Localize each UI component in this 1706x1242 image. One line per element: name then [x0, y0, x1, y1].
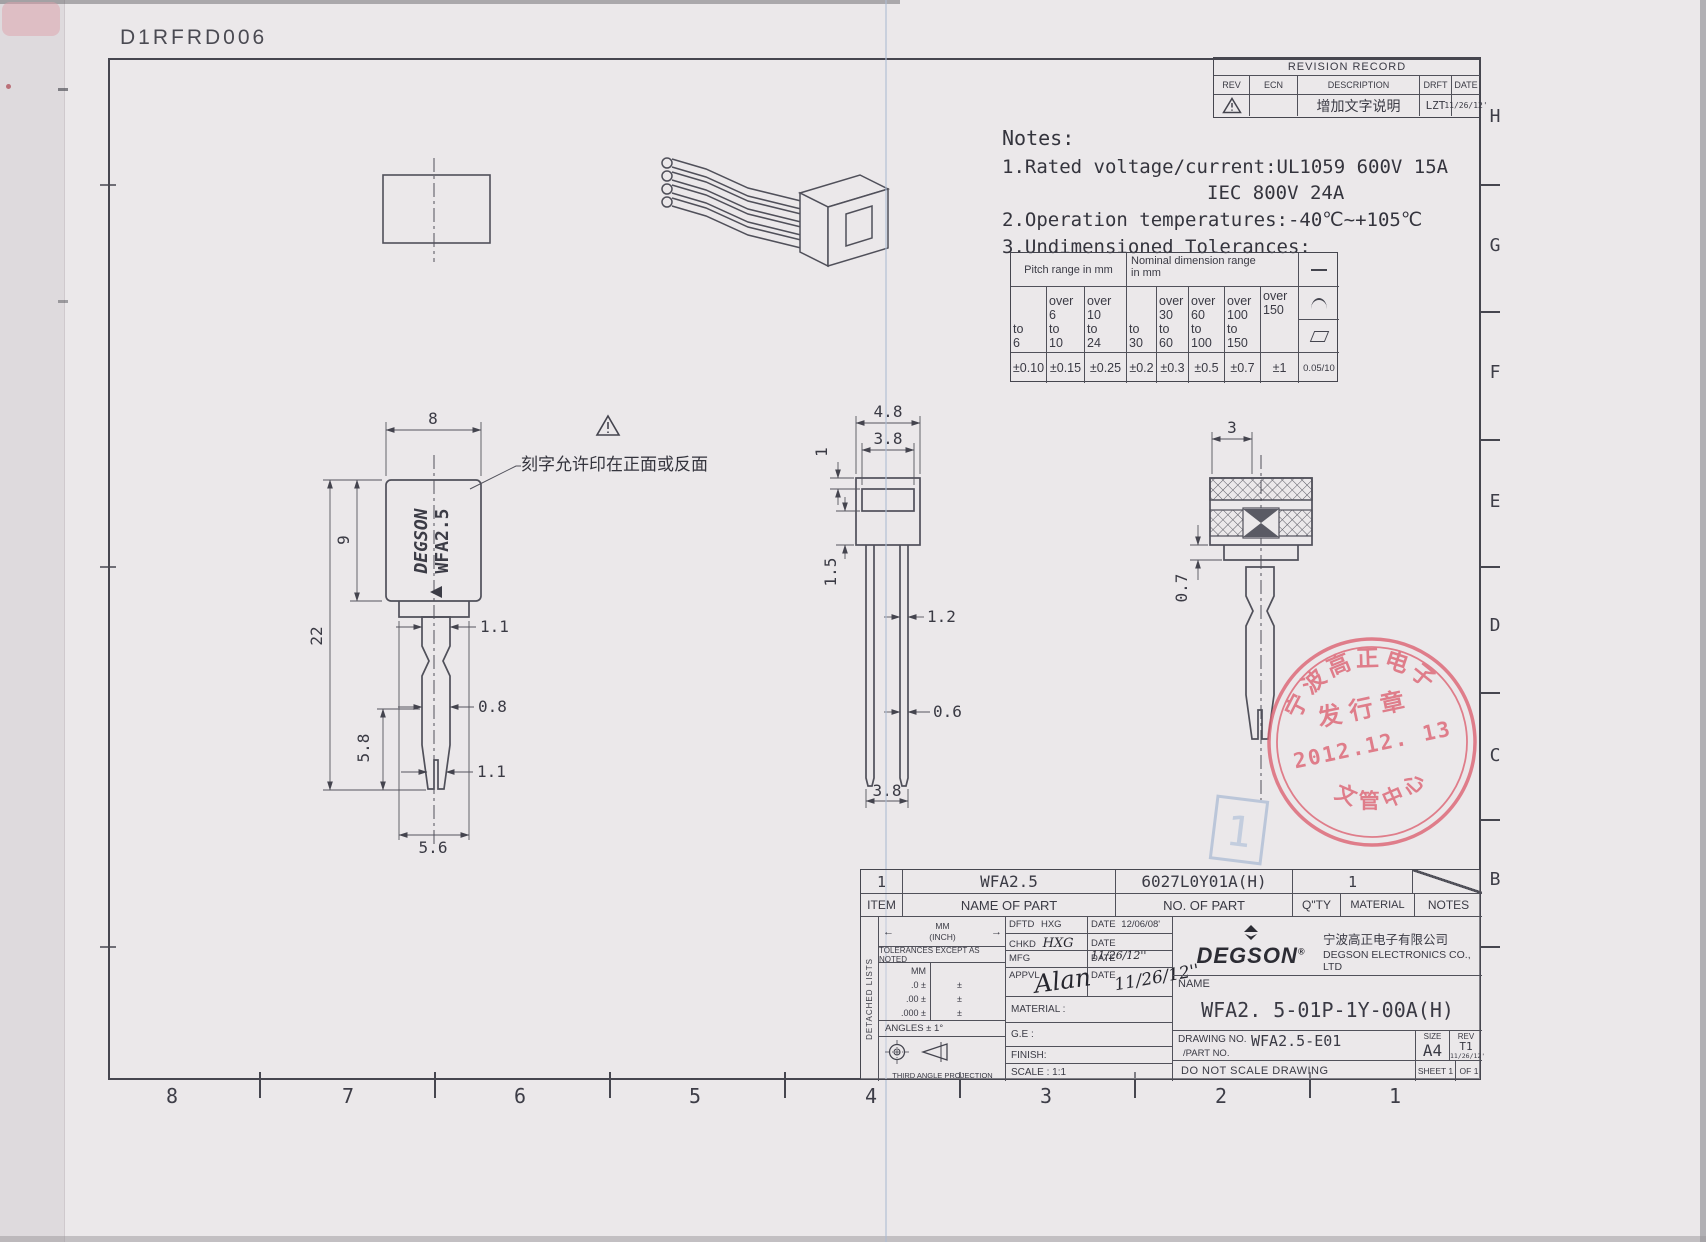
dftd-date-value: 12/06/08'	[1121, 919, 1160, 930]
revision-row-symbol	[1214, 95, 1250, 116]
revision-col-date: DATE	[1452, 76, 1480, 95]
dim-pin-top: 1.1	[480, 617, 509, 636]
dftd-date-cell: DATE 12/06/08'	[1088, 917, 1173, 934]
front-pin	[422, 617, 450, 789]
mm-inch-label: MM (INCH)	[929, 921, 955, 941]
revision-col-description: DESCRIPTION	[1298, 76, 1420, 95]
plan-view	[383, 158, 490, 262]
size-cell: SIZE A4	[1416, 1031, 1450, 1061]
red-company-stamp: 宁波高正电子 发行章 2012.12. 13 文管中心	[1250, 620, 1494, 864]
parts-qty: 1	[1293, 870, 1413, 894]
date-label: DATE	[1091, 938, 1116, 949]
rev-value: T1	[1450, 1041, 1482, 1052]
left-arrow-icon: ←	[883, 926, 894, 938]
chkd-label: CHKD	[1009, 939, 1036, 950]
head-qty: Q"TY	[1293, 894, 1341, 917]
chkd-cell: CHKD HXG	[1006, 934, 1088, 951]
degson-logo-icon	[1237, 925, 1265, 940]
dim-side-window: 1.5	[821, 558, 840, 587]
drawing-no-cell: DRAWING NO. WFA2.5-E01 /PART NO.	[1173, 1031, 1416, 1061]
pitch-range-cell: over 10 to 24	[1085, 287, 1127, 353]
dim-front-body-height: 9	[334, 535, 353, 545]
ge-row: G.E :	[1006, 1023, 1173, 1047]
warning-triangle-icon	[597, 416, 619, 435]
dim-front-bottom-width: 5.6	[419, 838, 448, 857]
dim-right-neck: 0.7	[1172, 574, 1191, 603]
marking-callout-text: 刻字允许印在正面或反面	[521, 455, 708, 475]
callout-leader	[470, 466, 521, 489]
notes-title: Notes:	[1002, 126, 1482, 150]
head-material: MATERIAL	[1341, 894, 1415, 917]
head-item: ITEM	[861, 894, 903, 917]
dim-side-width: 4.8	[874, 402, 903, 421]
angles-label: ANGLES ± 1°	[879, 1021, 1006, 1037]
chkd-date-cell: DATE 11/26/12''	[1088, 934, 1173, 951]
symbol-parallelogram-cell	[1299, 320, 1339, 353]
pitch-range-cell: over 6 to 10	[1047, 287, 1085, 353]
chkd-signature: HXG	[1043, 936, 1074, 951]
stamp-mid-text: 发行章	[1314, 685, 1415, 733]
detached-lists-label: DETACHED LISTS	[865, 958, 874, 1040]
tolerance-value: ±0.25	[1085, 353, 1127, 383]
brand-triangle-icon	[430, 586, 442, 598]
material-row: MATERIAL :	[1006, 997, 1173, 1023]
of-cell: OF 1	[1456, 1061, 1482, 1081]
nominal-range-header: Nominal dimension range in mm	[1127, 253, 1299, 287]
dim-pin-bottom: 1.1	[477, 762, 506, 781]
date-label: DATE	[1091, 919, 1116, 930]
parts-name: WFA2.5	[903, 870, 1116, 894]
tol-grid-right: ± ± ±	[931, 963, 1006, 1021]
svg-text:文管中心: 文管中心	[1327, 761, 1438, 823]
dim-front-total-height: 22	[307, 626, 326, 645]
revision-row-ecn	[1250, 95, 1298, 116]
front-view: DEGSON WFA2.5 刻字允许印在正面或反面 8 9 2	[307, 409, 708, 857]
iso-pins	[662, 158, 801, 248]
iso-body	[800, 175, 888, 266]
crimp-band-top	[1210, 478, 1312, 500]
isometric-view	[662, 158, 888, 266]
company-name-section: DEGSON® 宁波高正电子有限公司 DEGSON ELECTRONICS CO…	[1173, 917, 1482, 1081]
drawing-no-label: DRAWING NO.	[1178, 1034, 1247, 1045]
degson-logo: DEGSON®	[1191, 925, 1311, 967]
scale-row: SCALE : 1:1	[1006, 1064, 1173, 1081]
dim-side-leg: 0.6	[933, 702, 962, 721]
symbol-arc-cell	[1299, 287, 1339, 320]
tol-mm: MM	[883, 964, 926, 978]
detached-lists-strip: DETACHED LISTS	[861, 917, 879, 1081]
notes-block: Notes: 1.Rated voltage/current:UL1059 60…	[1002, 126, 1482, 258]
revision-col-ecn: ECN	[1250, 76, 1298, 95]
tolerance-value: ±0.3	[1157, 353, 1189, 383]
pitch-range-header: Pitch range in mm	[1011, 253, 1127, 287]
tol-r3: .000 ±	[883, 1006, 926, 1020]
tolerance-value: ±0.7	[1225, 353, 1261, 383]
appvl-cell: APPVL Alan	[1006, 968, 1088, 997]
dim-side-leg-pair: 1.2	[927, 607, 956, 626]
company-band: DEGSON® 宁波高正电子有限公司 DEGSON ELECTRONICS CO…	[1173, 917, 1482, 976]
tol-pm3: ±	[957, 1006, 1006, 1020]
nominal-range-cell: to 30	[1127, 287, 1157, 353]
name-label: NAME	[1178, 978, 1210, 990]
tolerance-value: 0.05/10	[1299, 353, 1339, 383]
parts-notes-slash	[1413, 870, 1482, 894]
dim-front-lower: 5.8	[354, 734, 373, 763]
tol-grid: MM .0 ± .00 ± .000 ± ± ± ±	[879, 963, 1006, 1021]
do-not-scale-label: DO NOT SCALE DRAWING	[1173, 1061, 1416, 1081]
dftd-value: HXG	[1041, 919, 1062, 930]
brand-model-text: WFA2.5	[432, 508, 453, 573]
nominal-range-cell: over 150	[1261, 287, 1299, 353]
tolerance-value: ±0.2	[1127, 353, 1157, 383]
side-leg-right	[900, 545, 908, 786]
dftd-cell: DFTD HXG	[1006, 917, 1088, 934]
side-dim-lines	[830, 416, 930, 808]
mfg-date-cell: DATE	[1088, 951, 1173, 968]
parts-item: 1	[861, 870, 903, 894]
straight-line-icon	[1311, 269, 1327, 271]
sheet-cell: SHEET 1	[1416, 1061, 1456, 1081]
mm-inch-row: ← MM (INCH) →	[879, 917, 1006, 947]
side-window	[862, 489, 914, 511]
rev-cell: REV T1 11/26/12'	[1450, 1031, 1482, 1061]
note-line-2: IEC 800V 24A	[1002, 182, 1482, 204]
tolerance-table: Pitch range in mm Nominal dimension rang…	[1010, 252, 1338, 382]
nominal-range-cell: over 30 to 60	[1157, 287, 1189, 353]
arc-icon	[1311, 298, 1327, 309]
nominal-range-cell: over 60 to 100	[1189, 287, 1225, 353]
dim-side-width2: 3.8	[874, 429, 903, 448]
signature-section: DFTD HXG DATE 12/06/08' CHKD HXG DATE 11…	[1006, 917, 1173, 1081]
dim-side-rib: 1	[812, 447, 831, 457]
revision-row-description: 增加文字说明	[1298, 95, 1420, 116]
note-line-1: 1.Rated voltage/current:UL1059 600V 15A	[1002, 156, 1482, 178]
pitch-range-cell: to 6	[1011, 287, 1047, 353]
degson-wordmark: DEGSON®	[1191, 945, 1311, 967]
projection-cell: THIRD ANGLE PROJECTION	[879, 1037, 1006, 1081]
right-dim-lines	[1190, 432, 1252, 580]
tol-pm2: ±	[957, 992, 1006, 1006]
side-leg-left	[866, 545, 874, 786]
tolerance-value: ±1	[1261, 353, 1299, 383]
tol-pm1: ±	[957, 978, 1006, 992]
company-name-cn: 宁波高正电子有限公司	[1323, 929, 1448, 948]
blue-stamp-number: 1	[1223, 806, 1254, 858]
head-name: NAME OF PART	[903, 894, 1116, 917]
tol-r1: .0 ±	[883, 978, 926, 992]
size-value: A4	[1416, 1041, 1449, 1060]
name-band: NAME WFA2. 5-01P-1Y-00A(H)	[1173, 976, 1482, 1031]
nominal-range-cell: over 100 to 150	[1225, 287, 1261, 353]
part-name: WFA2. 5-01P-1Y-00A(H)	[1173, 998, 1482, 1022]
front-marking: DEGSON WFA2.5	[411, 507, 453, 598]
tolerance-value: ±0.5	[1189, 353, 1225, 383]
appvl-date-cell: DATE 11/26/12''	[1088, 968, 1173, 997]
stamp-date-text: 2012.12. 13	[1291, 716, 1454, 773]
revision-record-table: REVISION RECORD REV ECN DESCRIPTION DRFT…	[1213, 57, 1481, 118]
stamp-arc-bottom-text: 文管中心	[1327, 761, 1438, 823]
tol-grid-left: MM .0 ± .00 ± .000 ±	[879, 963, 931, 1021]
drawing-no-value: WFA2.5-E01	[1251, 1032, 1341, 1050]
right-view: 3 0.7	[1172, 418, 1312, 800]
tolerances-note: TOLERANCES EXCEPT AS NOTED	[879, 947, 1006, 963]
revision-row-date: 11/26/12'	[1452, 95, 1480, 116]
right-pin	[1246, 567, 1274, 739]
dim-front-width: 8	[428, 409, 438, 428]
finish-row: FINISH:	[1006, 1047, 1173, 1064]
blue-stamp-ghost: 1	[1210, 796, 1267, 864]
third-angle-projection-label: THIRD ANGLE PROJECTION	[879, 1071, 1006, 1080]
appvl-signature: Alan	[1032, 962, 1093, 999]
tolerance-value: ±0.10	[1011, 353, 1047, 383]
revision-warning-triangle-icon	[1222, 97, 1242, 114]
title-block: 1 WFA2.5 6027L0Y01A(H) 1 ITEM NAME OF PA…	[860, 869, 1481, 1080]
tol-r2: .00 ±	[883, 992, 926, 1006]
tolerance-section: ← MM (INCH) → TOLERANCES EXCEPT AS NOTED…	[879, 917, 1006, 1081]
right-arrow-icon: →	[991, 926, 1002, 938]
mfg-label: MFG	[1009, 953, 1030, 964]
part-no-label: /PART NO.	[1183, 1048, 1229, 1059]
registered-mark: ®	[1298, 947, 1306, 957]
dftd-label: DFTD	[1009, 919, 1034, 930]
front-dim-lines	[323, 422, 481, 840]
dim-pin-mid: 0.8	[478, 697, 507, 716]
size-label: SIZE	[1416, 1032, 1449, 1041]
revision-col-rev: REV	[1214, 76, 1250, 95]
parallelogram-icon	[1309, 331, 1328, 342]
tolerance-value: ±0.15	[1047, 353, 1085, 383]
date-label: DATE	[1091, 953, 1116, 964]
note-line-3: 2.Operation temperatures:-40℃~+105℃	[1002, 209, 1482, 231]
head-notes: NOTES	[1415, 894, 1482, 917]
dim-right-top: 3	[1227, 418, 1237, 437]
head-part-no: NO. OF PART	[1116, 894, 1293, 917]
parts-part-no: 6027L0Y01A(H)	[1116, 870, 1293, 894]
third-angle-projection-icon	[885, 1040, 955, 1064]
revision-col-drft: DRFT	[1420, 76, 1452, 95]
symbol-straightness-cell	[1299, 253, 1339, 287]
rev-date: 11/26/12'	[1450, 1052, 1482, 1060]
revision-table-title: REVISION RECORD	[1214, 58, 1480, 76]
company-name-en: DEGSON ELECTRONICS CO., LTD	[1323, 949, 1482, 973]
scanned-drawing-sheet: D1RFRD006 H G F E D C B 8 7 6 5 4 3 2 1	[0, 0, 1706, 1242]
brand-text: DEGSON	[411, 507, 432, 574]
degson-wordmark-text: DEGSON	[1197, 943, 1298, 968]
